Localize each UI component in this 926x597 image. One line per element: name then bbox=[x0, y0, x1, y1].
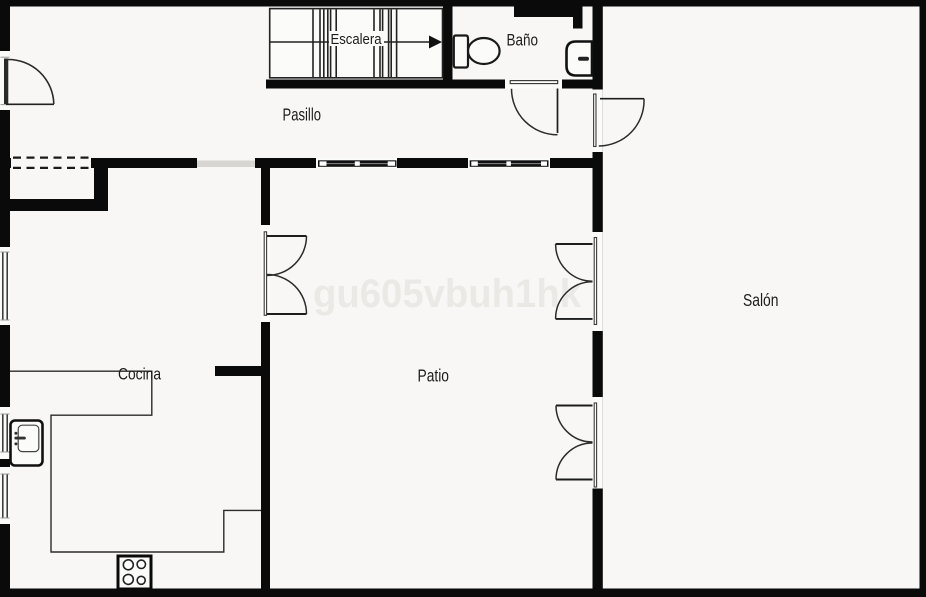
svg-text:Pasillo: Pasillo bbox=[283, 105, 322, 125]
svg-text:Cocina: Cocina bbox=[118, 365, 161, 384]
svg-text:Patio: Patio bbox=[418, 366, 450, 386]
svg-text:Escalera: Escalera bbox=[331, 32, 383, 48]
svg-text:Salón: Salón bbox=[743, 290, 779, 310]
svg-text:Baño: Baño bbox=[507, 30, 539, 49]
svg-text:gu605vbuh1hk: gu605vbuh1hk bbox=[313, 272, 582, 316]
